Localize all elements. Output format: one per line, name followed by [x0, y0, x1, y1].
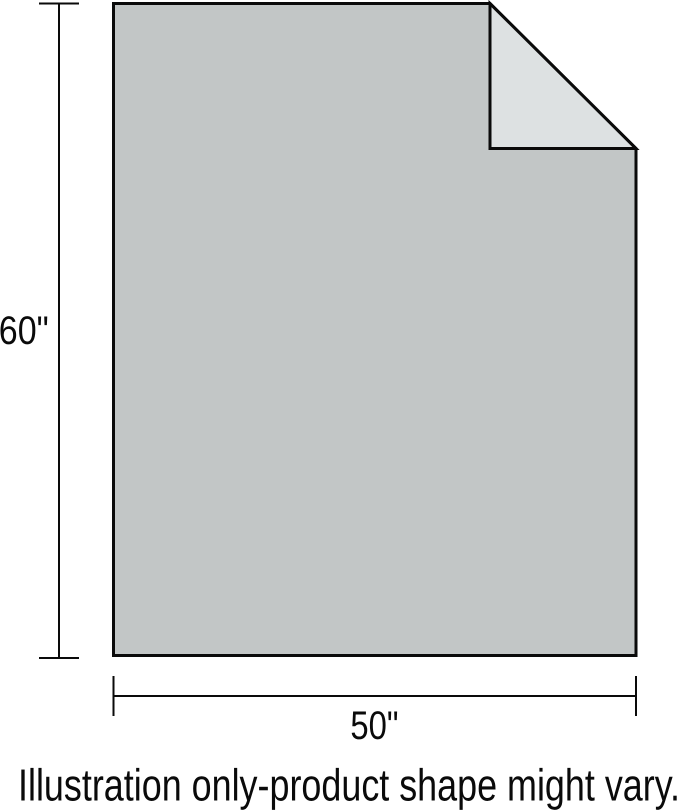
svg-text:Illustration only-product shap: Illustration only-product shape might va…	[18, 760, 679, 810]
svg-text:60": 60"	[0, 309, 49, 353]
svg-text:50": 50"	[350, 704, 398, 748]
